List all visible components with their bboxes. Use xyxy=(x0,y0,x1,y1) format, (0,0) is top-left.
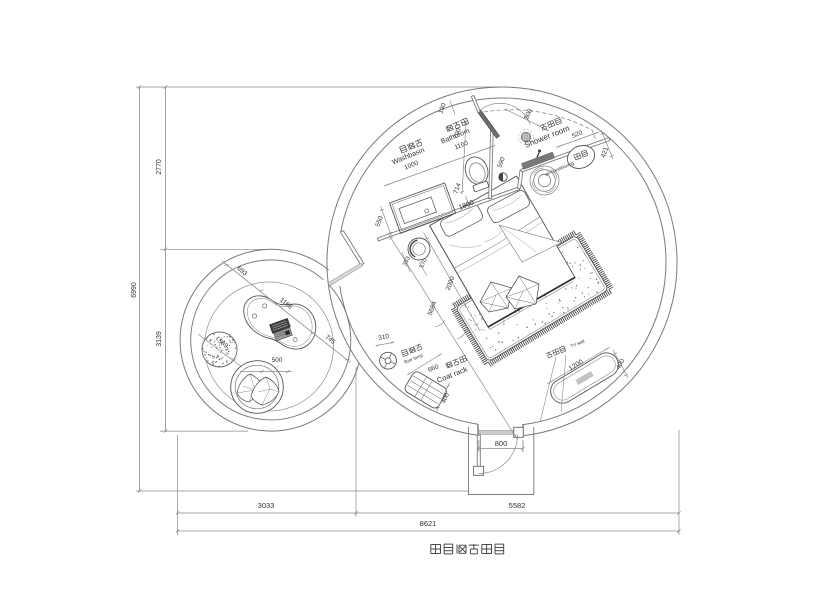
svg-text:6990: 6990 xyxy=(131,282,138,298)
svg-text:8621: 8621 xyxy=(420,519,437,528)
svg-text:3139: 3139 xyxy=(156,331,163,347)
svg-text:2770: 2770 xyxy=(156,159,163,175)
svg-text:500: 500 xyxy=(272,357,283,364)
svg-text:800: 800 xyxy=(495,439,508,448)
svg-text:3033: 3033 xyxy=(258,501,275,510)
svg-text:5582: 5582 xyxy=(509,501,526,510)
